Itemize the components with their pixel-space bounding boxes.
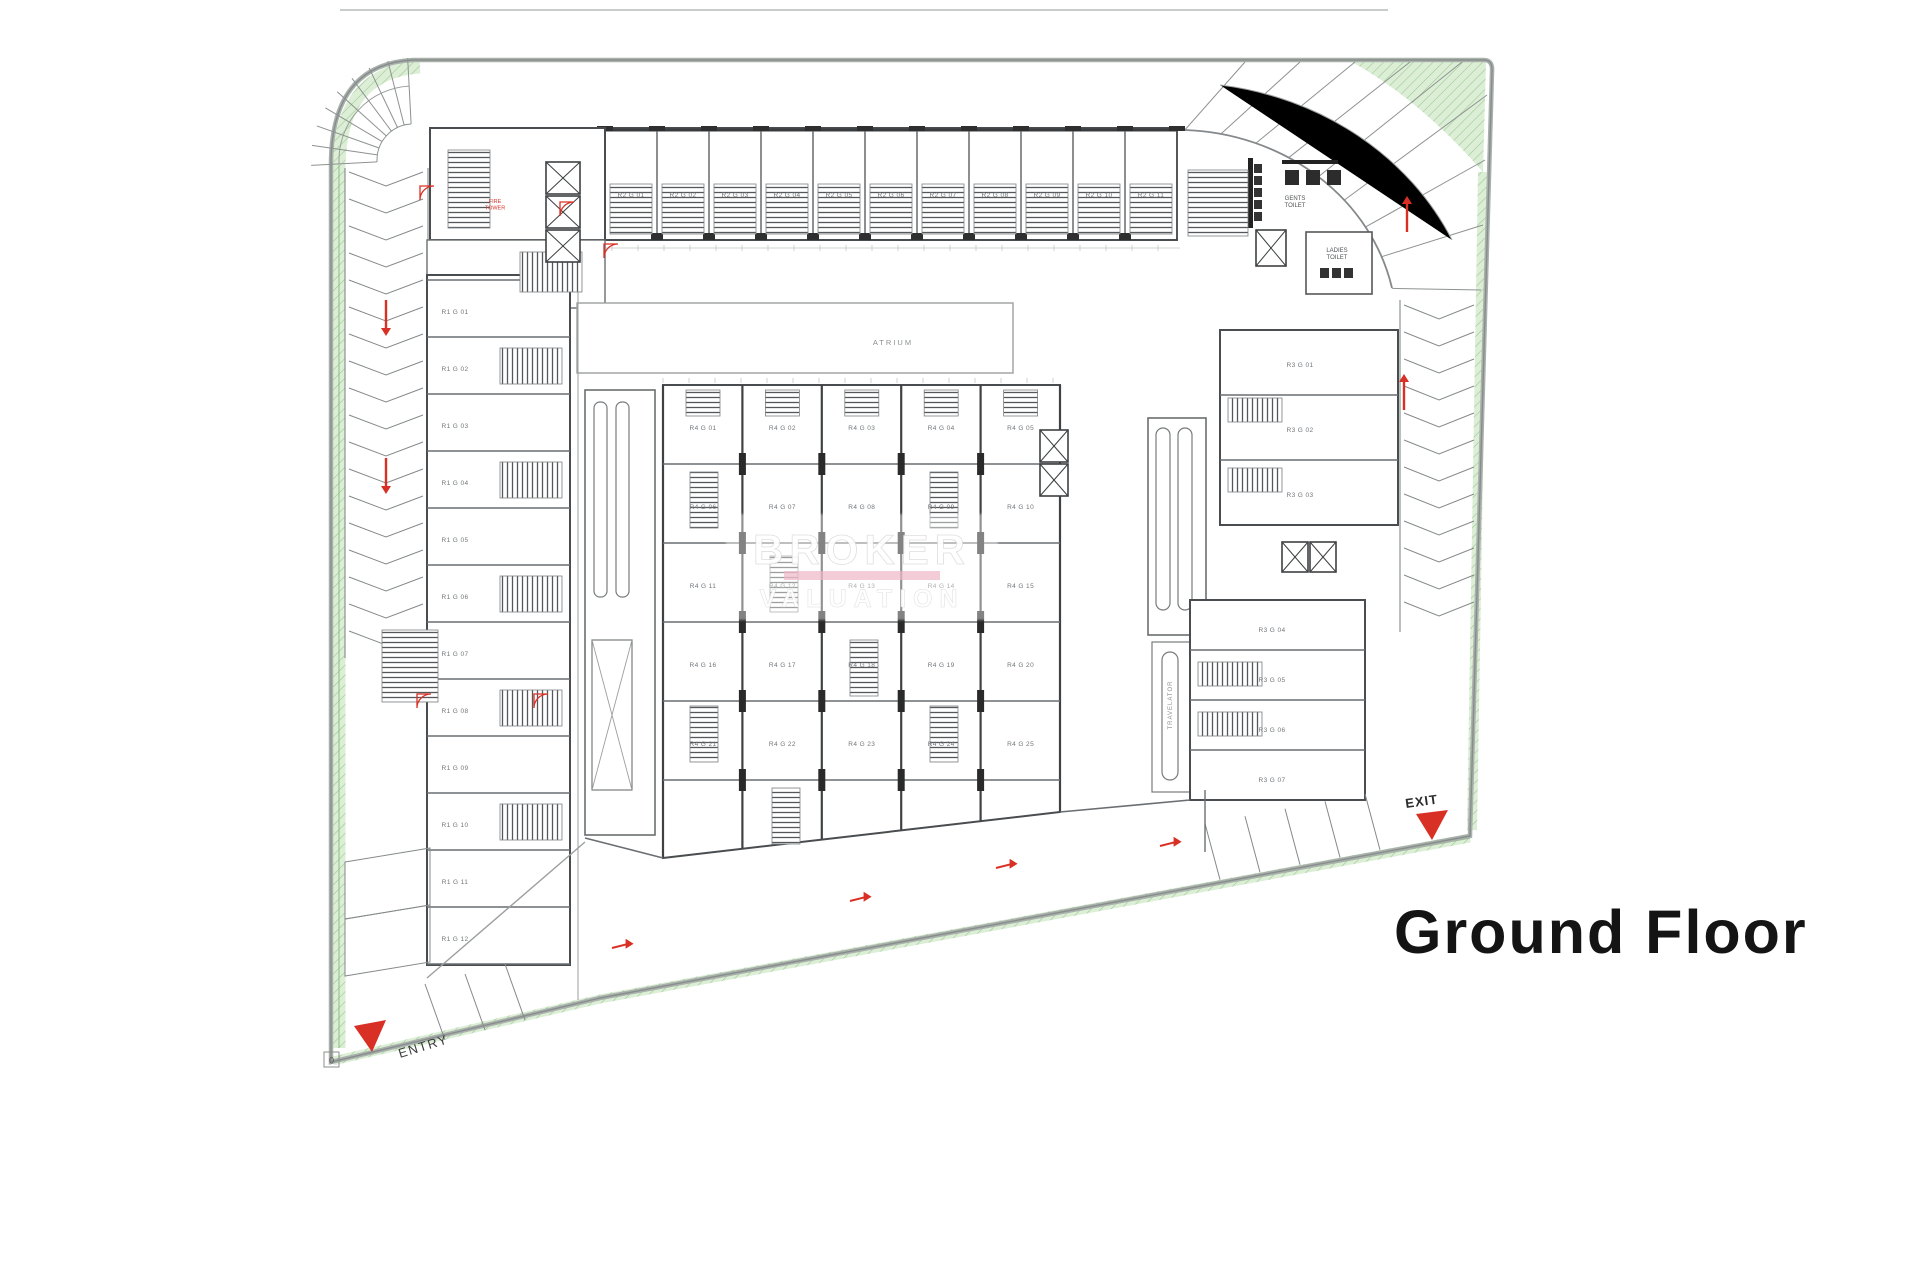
door-block (755, 233, 767, 240)
wall-fill (1248, 158, 1253, 228)
direction-arrow-head (381, 328, 391, 336)
door-block (859, 233, 871, 240)
parking-chevron (349, 604, 423, 618)
parking-chevron (349, 172, 423, 186)
unit-label: R1 G 10 (441, 822, 468, 829)
toilet-stair (1188, 170, 1248, 236)
wc-fixture (1306, 170, 1320, 185)
door-block (977, 453, 984, 475)
unit-label: R1 G 12 (441, 936, 468, 943)
unit-stair (500, 462, 562, 498)
unit-label: R2 G 03 (721, 192, 748, 199)
fire-stair (382, 630, 438, 702)
unit-label: R1 G 01 (441, 309, 468, 316)
unit-label: R4 G 03 (848, 425, 875, 432)
unit-label: R4 G 11 (690, 583, 717, 590)
watermark-line2: VALUATION (759, 585, 964, 613)
unit-label: R4 G 06 (689, 504, 716, 511)
door-block (739, 453, 746, 475)
door-block (1013, 126, 1029, 131)
unit-label: R1 G 07 (441, 651, 468, 658)
unit-label: R3 G 03 (1286, 492, 1313, 499)
drive-arrow-head (1010, 859, 1018, 869)
door-block (651, 233, 663, 240)
parking-stall-line (1365, 794, 1380, 850)
parking-chevron (349, 496, 423, 510)
unit-label: R2 G 06 (877, 192, 904, 199)
wc-fixture (1320, 268, 1329, 278)
parking-chevron (349, 442, 423, 456)
door-block (977, 690, 984, 712)
door-block (818, 690, 825, 712)
unit-label: R4 G 07 (769, 504, 796, 511)
urinal (1254, 164, 1262, 173)
direction-arrow-head (381, 486, 391, 494)
fire-door-swing (604, 244, 618, 258)
door-block (1169, 126, 1185, 131)
unit-label: R2 G 11 (1138, 192, 1165, 199)
unit-label: R2 G 08 (981, 192, 1008, 199)
unit-label: R2 G 01 (617, 192, 644, 199)
door-block (739, 769, 746, 791)
unit-label: R2 G 09 (1033, 192, 1060, 199)
unit-label: R1 G 06 (441, 594, 468, 601)
unit-stair (930, 706, 958, 762)
travelator (1156, 428, 1170, 610)
unit-label: R4 G 20 (1007, 662, 1034, 669)
unit-label: R4 G 19 (928, 662, 955, 669)
door-block (961, 126, 977, 131)
unit-label: R1 G 09 (441, 765, 468, 772)
door-block (805, 126, 821, 131)
fan-inner-arc (377, 124, 411, 162)
unit-label: R1 G 05 (441, 537, 468, 544)
drive-arrow-head (1174, 837, 1182, 847)
door-block (739, 690, 746, 712)
urinal (1254, 176, 1262, 185)
ladies-toilet-room (1306, 232, 1372, 294)
unit-label: R2 G 02 (669, 192, 696, 199)
unit-label: R4 G 01 (689, 425, 716, 432)
unit-stair (772, 788, 800, 844)
parking-chevron (1404, 494, 1474, 508)
parking-chevron (349, 577, 423, 591)
unit-stair (500, 348, 562, 384)
door-block (1119, 233, 1131, 240)
parking-chevron (349, 226, 423, 240)
parking-chevron (1404, 359, 1474, 373)
parking-chevron (1404, 467, 1474, 481)
wc-fixture (1327, 170, 1341, 185)
fan-spoke (1392, 288, 1481, 290)
unit-stair (686, 390, 720, 416)
drive-edge (585, 838, 663, 858)
unit-label: R4 G 15 (1007, 583, 1034, 590)
parking-chevron (1404, 332, 1474, 346)
parking-chevron (349, 550, 423, 564)
parking-stall-line (465, 974, 485, 1030)
unit-stair (1198, 662, 1262, 686)
unit-label: R4 G 04 (928, 425, 955, 432)
floor-plan-page: R2 G 01R2 G 02R2 G 03R2 G 04R2 G 05R2 G … (0, 0, 1920, 1280)
door-block (753, 126, 769, 131)
unit-label: R2 G 04 (773, 192, 800, 199)
drive-arrow-head (626, 939, 634, 949)
watermark: BROKER VALUATION (726, 514, 998, 620)
unit-label: R4 G 24 (928, 741, 955, 748)
door-block (818, 453, 825, 475)
door-block (898, 453, 905, 475)
unit-stair (690, 472, 718, 528)
parking-chevron (1404, 602, 1474, 616)
door-block (857, 126, 873, 131)
door-block (911, 233, 923, 240)
parking-chevron (1404, 305, 1474, 319)
parking-chevron (1404, 386, 1474, 400)
ladies-toilet-label: LADIESTOILET (1326, 248, 1347, 261)
door-block (909, 126, 925, 131)
unit-label: R4 G 16 (689, 662, 716, 669)
core-stair (448, 150, 490, 228)
parking-stall (345, 905, 430, 976)
door-block (703, 233, 715, 240)
fan-spoke (1382, 225, 1483, 257)
parking-chevron (349, 388, 423, 402)
unit-label: R2 G 07 (929, 192, 956, 199)
unit-stair (500, 690, 562, 726)
parking-chevron (349, 334, 423, 348)
door-block (1015, 233, 1027, 240)
ramp-lane (594, 402, 607, 597)
parking-stall-line (1325, 801, 1340, 857)
watermark-line1: BROKER (753, 526, 971, 573)
urinal (1254, 188, 1262, 197)
origin-marker-label: 0 (329, 1056, 334, 1066)
unit-stair (1198, 712, 1262, 736)
unit-stair (500, 804, 562, 840)
unit-label: R1 G 02 (441, 366, 468, 373)
atrium-label: ATRIUM (873, 338, 913, 347)
unit-label: R4 G 09 (928, 504, 955, 511)
unit-label: R1 G 08 (441, 708, 468, 715)
exit-label: EXIT (1404, 792, 1439, 811)
parking-stall (345, 848, 430, 919)
door-block (807, 233, 819, 240)
door-block (977, 769, 984, 791)
watermark-pink-bar (784, 571, 940, 580)
parking-stall-line (1245, 816, 1260, 872)
page-title: Ground Floor (1394, 897, 1808, 967)
unit-label: R4 G 02 (769, 425, 796, 432)
parking-chevron (349, 523, 423, 537)
unit-stair (845, 390, 879, 416)
urinal (1254, 200, 1262, 209)
exit-arrow (1416, 810, 1448, 840)
unit-label: R3 G 04 (1258, 627, 1285, 634)
unit-label: R3 G 02 (1286, 427, 1313, 434)
travelator-label: TRAVELATOR (1168, 680, 1174, 729)
door-block (701, 126, 717, 131)
green-band-left (339, 67, 420, 1048)
unit-label: R4 G 08 (848, 504, 875, 511)
unit-label: R4 G 25 (1007, 741, 1034, 748)
unit-label: R1 G 04 (441, 480, 468, 487)
parking-chevron (349, 361, 423, 375)
wc-fixture (1344, 268, 1353, 278)
unit-label: R1 G 03 (441, 423, 468, 430)
unit-label: R3 G 07 (1258, 777, 1285, 784)
parking-chevron (1404, 548, 1474, 562)
parking-chevron (1404, 413, 1474, 427)
unit-label: R1 G 11 (442, 879, 469, 886)
unit-label: R2 G 10 (1085, 192, 1112, 199)
ramp-lane (616, 402, 629, 597)
door-block (898, 690, 905, 712)
parking-stall-line (1285, 809, 1300, 865)
unit-label: R4 G 23 (848, 741, 875, 748)
parking-chevron (349, 253, 423, 267)
unit-label: R3 G 01 (1286, 362, 1313, 369)
parking-chevron (349, 415, 423, 429)
door-block (818, 769, 825, 791)
gents-toilet-label: GENTSTOILET (1285, 196, 1306, 209)
parking-chevron (1404, 575, 1474, 589)
unit-stair (1228, 398, 1282, 422)
floor-plan-drawing: R2 G 01R2 G 02R2 G 03R2 G 04R2 G 05R2 G … (0, 0, 1920, 1280)
wc-fixture (1332, 268, 1341, 278)
parking-chevron (349, 280, 423, 294)
parking-chevron (349, 199, 423, 213)
door-block (963, 233, 975, 240)
unit-stair (1004, 390, 1038, 416)
atrium (577, 303, 1013, 373)
unit-label: R4 G 10 (1007, 504, 1034, 511)
wall-fill (1282, 160, 1338, 164)
unit-label: R4 G 17 (769, 662, 796, 669)
door-block (1065, 126, 1081, 131)
unit-stair (690, 706, 718, 762)
drive-edge (1060, 800, 1190, 812)
unit-label: R4 G 05 (1007, 425, 1034, 432)
unit-label: R4 G 18 (848, 662, 875, 669)
unit-label: R3 G 05 (1258, 677, 1285, 684)
unit-label: R4 G 22 (769, 741, 796, 748)
door-block (1067, 233, 1079, 240)
unit-stair (765, 390, 799, 416)
urinal (1254, 212, 1262, 221)
door-block (1117, 126, 1133, 131)
travelator (1178, 428, 1192, 610)
unit-label: R4 G 21 (689, 741, 716, 748)
unit-stair (1228, 468, 1282, 492)
door-block (898, 769, 905, 791)
wc-fixture (1285, 170, 1299, 185)
drive-arrow-head (864, 892, 872, 902)
unit-stair (500, 576, 562, 612)
unit-label: R2 G 05 (825, 192, 852, 199)
parking-chevron (1404, 440, 1474, 454)
parking-chevron (1404, 521, 1474, 535)
parking-stall-line (1205, 824, 1220, 880)
unit-stair (924, 390, 958, 416)
door-block (649, 126, 665, 131)
parking-stall-line (505, 964, 525, 1020)
unit-label: R3 G 06 (1258, 727, 1285, 734)
